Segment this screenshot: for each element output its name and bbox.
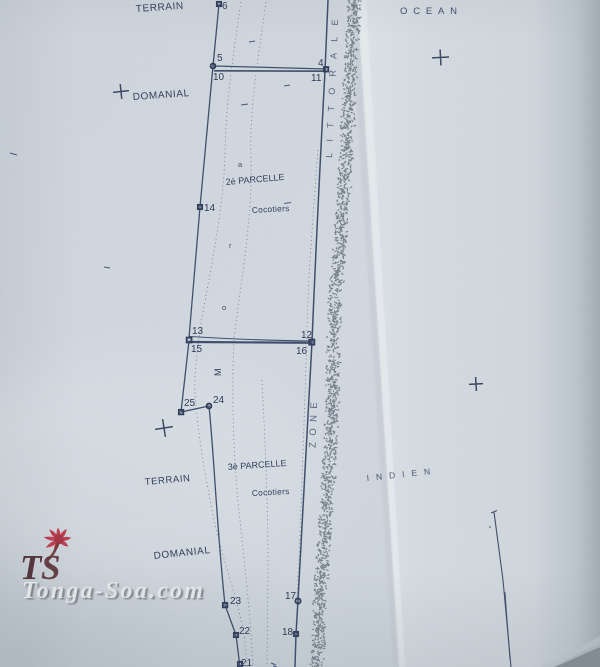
svg-text:17: 17 — [285, 591, 297, 602]
svg-text:14: 14 — [204, 203, 216, 214]
svg-text:24: 24 — [213, 395, 225, 406]
svg-text:18: 18 — [282, 627, 294, 638]
svg-text:6: 6 — [222, 1, 228, 12]
svg-text:23: 23 — [230, 596, 242, 607]
svg-text:16: 16 — [296, 346, 308, 357]
svg-text:22: 22 — [239, 626, 251, 637]
svg-text:21: 21 — [241, 658, 253, 667]
svg-text:o: o — [222, 303, 226, 312]
svg-text:Tonga-Soa.com: Tonga-Soa.com — [22, 578, 205, 604]
svg-text:10: 10 — [213, 72, 225, 83]
svg-text:11: 11 — [311, 73, 322, 84]
svg-text:13: 13 — [192, 326, 204, 337]
svg-text:ZONE: ZONE — [308, 396, 321, 448]
svg-text:12: 12 — [301, 330, 313, 341]
svg-text:M: M — [213, 369, 223, 377]
svg-text:25: 25 — [184, 398, 196, 409]
svg-text:4: 4 — [318, 58, 324, 69]
svg-text:15: 15 — [191, 344, 203, 355]
svg-text:5: 5 — [217, 53, 223, 64]
svg-text:Cocotiers: Cocotiers — [252, 203, 290, 215]
svg-text:OCEAN: OCEAN — [400, 6, 463, 17]
svg-text:Cocotiers: Cocotiers — [252, 486, 290, 498]
